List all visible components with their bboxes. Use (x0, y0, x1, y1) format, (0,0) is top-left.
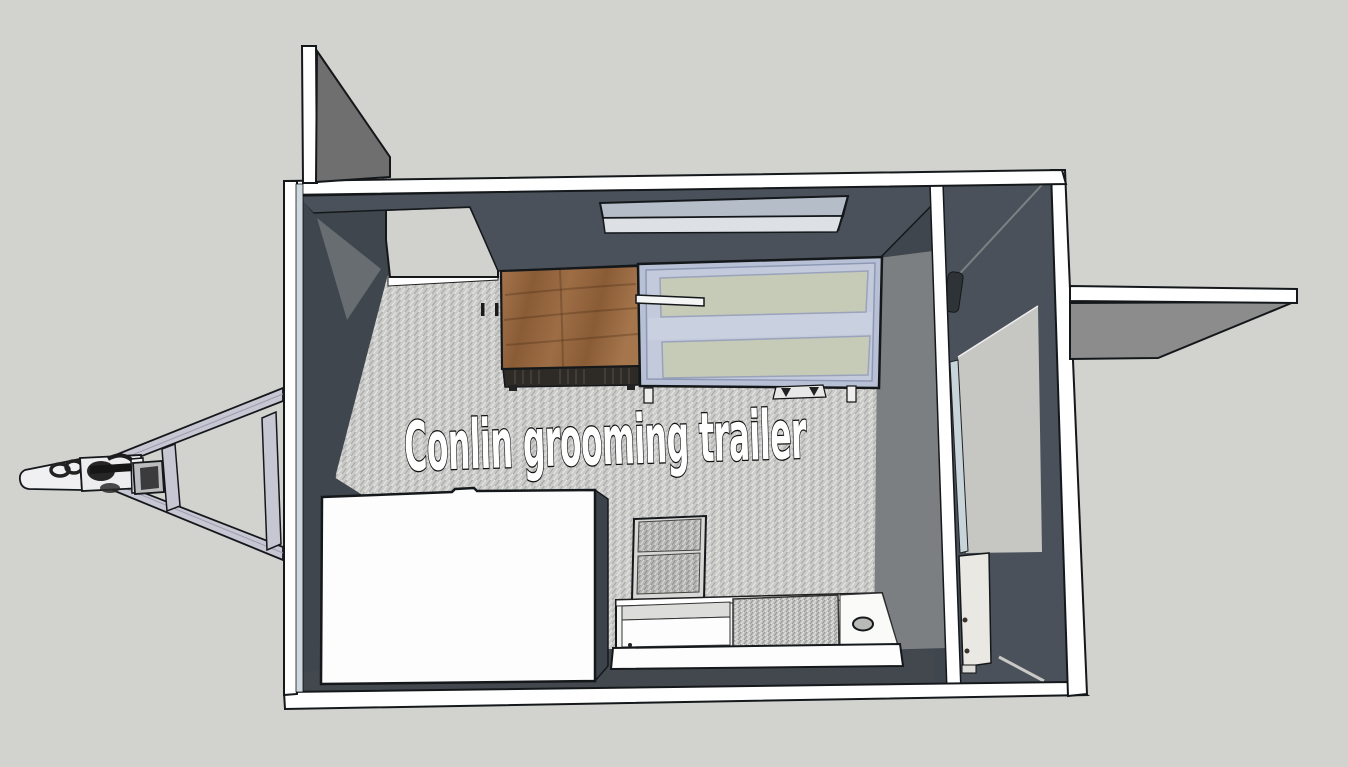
trailer-3d-scene: Conlin grooming trailer (0, 0, 1348, 767)
tub-glass-panel-top (660, 271, 868, 317)
left-band-trim (296, 184, 303, 692)
storage-door-panel (959, 553, 991, 667)
skylight-vent (600, 196, 848, 233)
door-hinge-dot (963, 618, 968, 623)
white-table (321, 488, 608, 684)
counter-assembly (611, 593, 903, 669)
grooming-tub (636, 257, 882, 403)
door-foot (962, 665, 976, 673)
tub-glass-panel-bottom (662, 336, 870, 378)
floor-bracket (481, 303, 485, 316)
awning-top-strip (1070, 286, 1297, 303)
frame-left-band (284, 181, 297, 695)
door-hinge-dot (965, 649, 970, 654)
cabinet-foot (627, 384, 635, 390)
skylight-front-face (603, 216, 843, 233)
tub-foot (847, 386, 856, 402)
tub-foot (644, 388, 653, 403)
counter-mesh-panel (733, 595, 839, 647)
counter-oval-cutout (853, 618, 873, 631)
cabinet-foot (509, 385, 517, 391)
table-top-face (321, 488, 595, 684)
mesh-crate (632, 516, 706, 600)
jack-cylinder-core (140, 466, 159, 490)
floor-label-text: Conlin grooming trailer (403, 396, 808, 488)
model-viewport[interactable]: Conlin grooming trailer (0, 0, 1348, 767)
table-side-face (595, 490, 608, 681)
coupler-shadow (100, 483, 120, 493)
floor-bracket (495, 303, 499, 316)
counter-screw (628, 643, 632, 647)
crate-mesh-bottom (637, 553, 700, 594)
counter-left-panel (622, 617, 730, 647)
crate-mesh-top (638, 519, 701, 552)
wood-cabinet (501, 266, 640, 391)
counter-base-strip (611, 644, 903, 669)
rear-flap-edge (302, 46, 317, 183)
